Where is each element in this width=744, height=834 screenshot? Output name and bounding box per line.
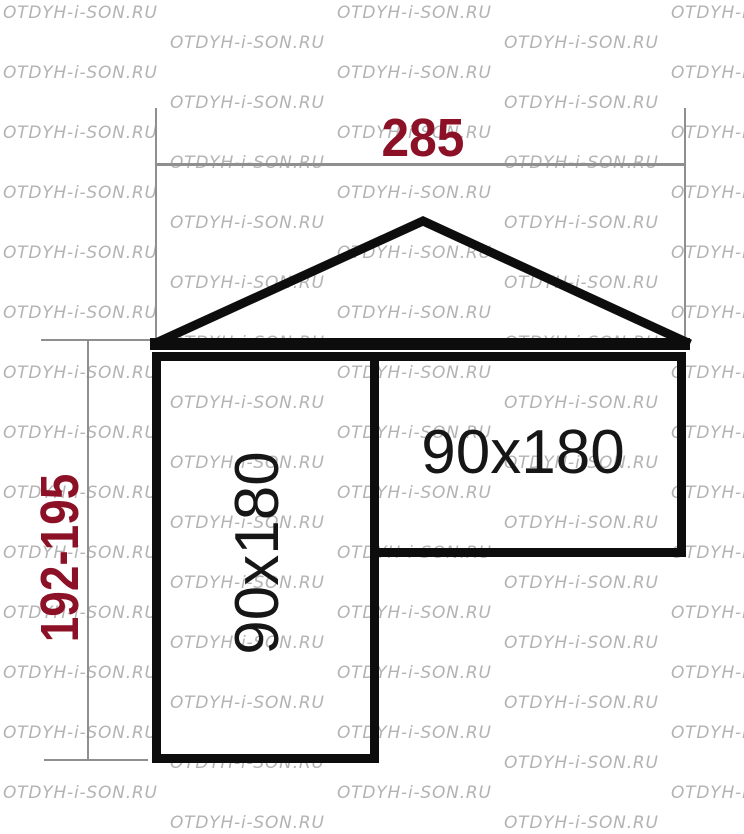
watermark-text: OTDYH-i-SON.RU — [3, 183, 158, 203]
watermark-text: OTDYH-i-SON.RU — [504, 693, 659, 713]
headboard-bar — [150, 338, 690, 350]
watermark-text: OTDYH-i-SON.RU — [3, 303, 158, 323]
bed-right-size-label: 90x180 — [413, 422, 633, 484]
watermark-text: OTDYH-i-SON.RU — [337, 63, 492, 83]
height-tick-top — [41, 339, 156, 341]
watermark-text: OTDYH-i-SON.RU — [671, 783, 744, 803]
watermark-text: OTDYH-i-SON.RU — [170, 213, 325, 233]
watermark-text: OTDYH-i-SON.RU — [3, 423, 158, 443]
watermark-text: OTDYH-i-SON.RU — [170, 273, 325, 293]
watermark-text: OTDYH-i-SON.RU — [170, 813, 325, 833]
watermark-text: OTDYH-i-SON.RU — [170, 93, 325, 113]
watermark-text: OTDYH-i-SON.RU — [504, 213, 659, 233]
watermark-text: OTDYH-i-SON.RU — [3, 63, 158, 83]
extension-line-right — [684, 108, 686, 341]
watermark-text: OTDYH-i-SON.RU — [504, 273, 659, 293]
extension-line-left — [155, 108, 157, 341]
height-dimension-label: 192-195 — [33, 465, 87, 652]
watermark-text: OTDYH-i-SON.RU — [671, 603, 744, 623]
watermark-text: OTDYH-i-SON.RU — [3, 123, 158, 143]
height-tick-bottom — [44, 759, 148, 761]
watermark-text: OTDYH-i-SON.RU — [337, 303, 492, 323]
watermark-text: OTDYH-i-SON.RU — [671, 663, 744, 683]
watermark-text: OTDYH-i-SON.RU — [504, 33, 659, 53]
watermark-text: OTDYH-i-SON.RU — [671, 243, 744, 263]
watermark-text: OTDYH-i-SON.RU — [504, 573, 659, 593]
watermark-text: OTDYH-i-SON.RU — [337, 783, 492, 803]
watermark-text: OTDYH-i-SON.RU — [504, 813, 659, 833]
watermark-text: OTDYH-i-SON.RU — [671, 123, 744, 143]
width-dimension-label: 285 — [354, 114, 492, 162]
watermark-text: OTDYH-i-SON.RU — [671, 3, 744, 23]
watermark-text: OTDYH-i-SON.RU — [3, 783, 158, 803]
watermark-text: OTDYH-i-SON.RU — [671, 303, 744, 323]
watermark-text: OTDYH-i-SON.RU — [337, 243, 492, 263]
watermark-text: OTDYH-i-SON.RU — [504, 633, 659, 653]
watermark-text: OTDYH-i-SON.RU — [3, 723, 158, 743]
watermark-text: OTDYH-i-SON.RU — [337, 183, 492, 203]
watermark-text: OTDYH-i-SON.RU — [170, 33, 325, 53]
watermark-text: OTDYH-i-SON.RU — [3, 243, 158, 263]
bed-left-size-label: 90x180 — [227, 443, 289, 663]
watermark-text: OTDYH-i-SON.RU — [3, 363, 158, 383]
watermark-text: OTDYH-i-SON.RU — [337, 3, 492, 23]
watermark-text: OTDYH-i-SON.RU — [3, 663, 158, 683]
watermark-text: OTDYH-i-SON.RU — [671, 63, 744, 83]
watermark-text: OTDYH-i-SON.RU — [504, 93, 659, 113]
watermark-text: OTDYH-i-SON.RU — [3, 3, 158, 23]
watermark-text: OTDYH-i-SON.RU — [671, 183, 744, 203]
watermark-text: OTDYH-i-SON.RU — [671, 723, 744, 743]
bed-layout-diagram: OTDYH-i-SON.RUOTDYH-i-SON.RUOTDYH-i-SON.… — [0, 0, 744, 834]
watermark-text: OTDYH-i-SON.RU — [504, 753, 659, 773]
